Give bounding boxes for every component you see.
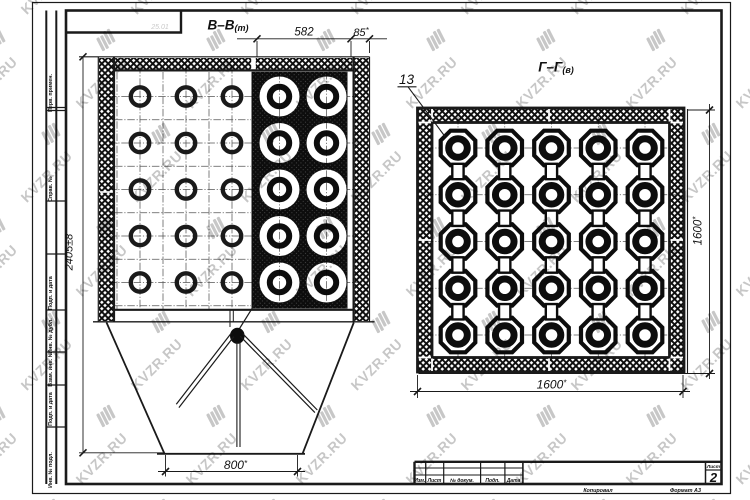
- svg-text:Подп. и дата: Подп. и дата: [48, 275, 54, 310]
- svg-text:№ докум.: № докум.: [450, 478, 474, 484]
- svg-text:Перв. примен.: Перв. примен.: [48, 73, 54, 112]
- svg-text:Подп. и дата: Подп. и дата: [48, 391, 54, 426]
- svg-text:1600*: 1600*: [692, 216, 705, 246]
- svg-text:2405±8: 2405±8: [64, 233, 76, 272]
- svg-text:Инв. № подл.: Инв. № подл.: [48, 452, 54, 488]
- svg-text:Копировал: Копировал: [583, 488, 613, 494]
- svg-text:13: 13: [399, 72, 415, 87]
- svg-text:1600*: 1600*: [537, 378, 568, 392]
- svg-text:Лист: Лист: [427, 478, 442, 484]
- svg-text:25.01: 25.01: [150, 24, 169, 31]
- svg-text:2: 2: [709, 470, 718, 485]
- svg-text:Подп.: Подп.: [485, 478, 499, 484]
- svg-text:Формат А3: Формат А3: [670, 488, 701, 494]
- svg-text:582: 582: [294, 27, 314, 39]
